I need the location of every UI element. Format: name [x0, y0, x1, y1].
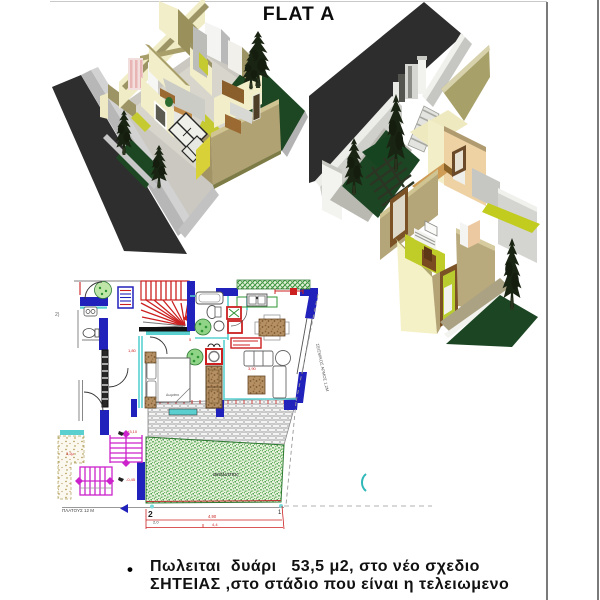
svg-text:2): 2): [55, 312, 60, 318]
svg-text:1: 1: [278, 510, 282, 516]
svg-text:ΠΛΑΤΟΥΣ 12 Μ: ΠΛΑΤΟΥΣ 12 Μ: [62, 508, 94, 513]
svg-text:Δωμάτιο: Δωμάτιο: [166, 393, 179, 397]
svg-text:1,80: 1,80: [128, 348, 137, 353]
svg-text:ΣΕΙΣΜΙΚΟΣ ΑΡΜΟΣ 1,2Μ: ΣΕΙΣΜΙΚΟΣ ΑΡΜΟΣ 1,2Μ: [315, 343, 330, 392]
svg-text:4,4: 4,4: [212, 522, 218, 527]
svg-text:ακάλυπτος: ακάλυπτος: [213, 472, 239, 478]
svg-text:3,2μ: 3,2μ: [66, 451, 75, 456]
svg-text:+3,10: +3,10: [127, 429, 138, 434]
svg-text:5: 5: [189, 337, 192, 342]
svg-text:-0,45: -0,45: [126, 477, 136, 482]
svg-text:2: 2: [148, 509, 153, 519]
svg-text:4,90: 4,90: [208, 514, 217, 519]
svg-text:3,90: 3,90: [248, 366, 257, 371]
svg-text:2,0: 2,0: [153, 520, 159, 525]
